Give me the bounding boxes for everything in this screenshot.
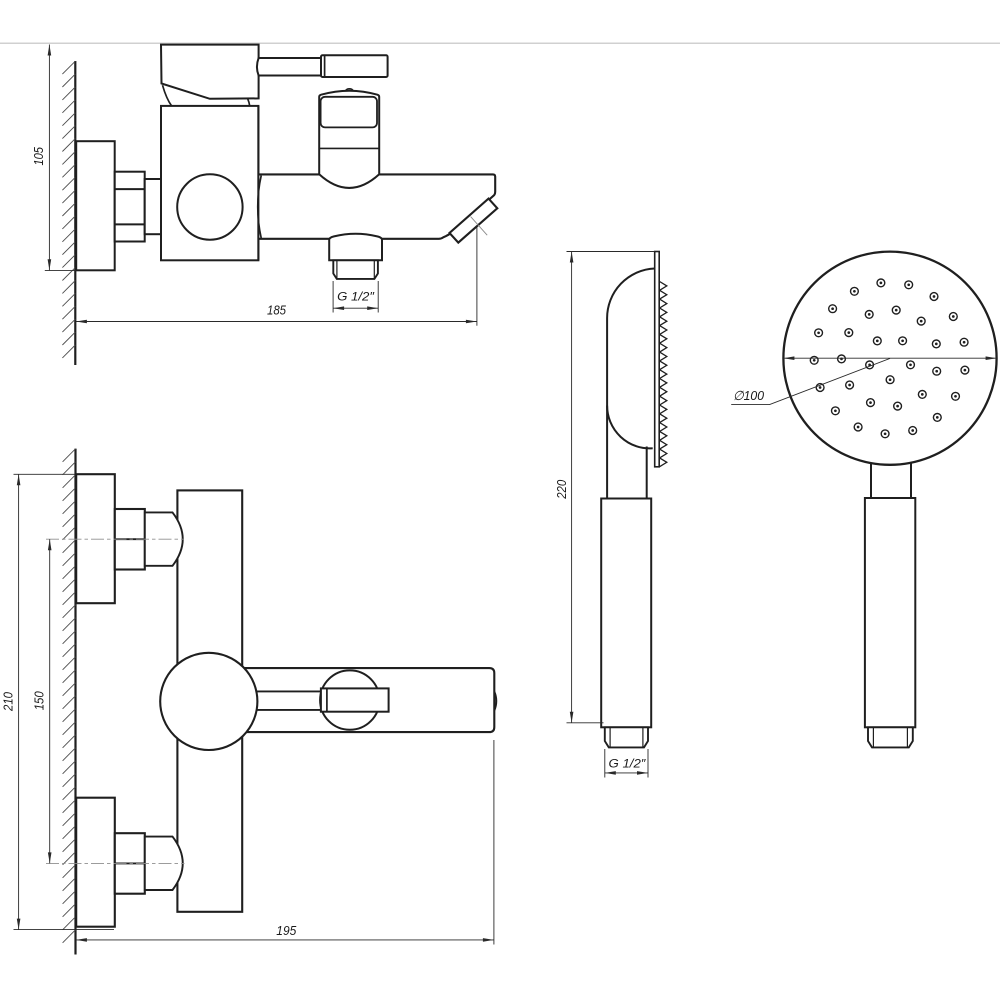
svg-text:210: 210 bbox=[1, 691, 16, 712]
svg-text:220: 220 bbox=[554, 479, 569, 500]
svg-text:150: 150 bbox=[32, 691, 47, 711]
svg-text:105: 105 bbox=[31, 146, 46, 165]
svg-text:195: 195 bbox=[276, 923, 297, 938]
svg-text:G 1/2″: G 1/2″ bbox=[609, 756, 647, 770]
svg-text:G 1/2″: G 1/2″ bbox=[337, 289, 375, 303]
svg-text:∅100: ∅100 bbox=[733, 388, 765, 403]
svg-text:185: 185 bbox=[267, 303, 287, 318]
